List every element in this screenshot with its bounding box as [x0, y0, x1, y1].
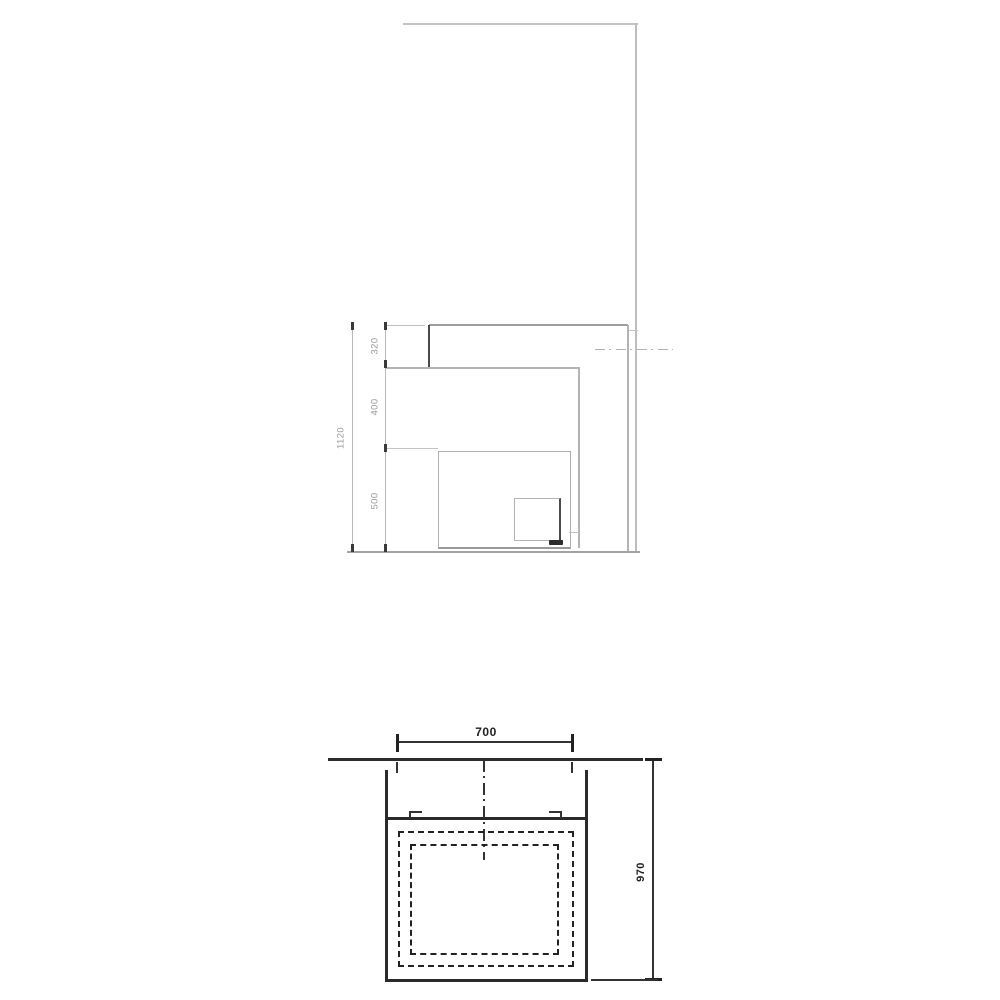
bottom-extension-line [591, 979, 658, 981]
dim-line-width [398, 741, 573, 743]
plan-body-right-edge [585, 770, 588, 982]
dim-tick [645, 758, 662, 761]
dim-tick [396, 734, 399, 752]
plan-view: 700 970 [0, 0, 1000, 1000]
plan-shelf-line [385, 817, 588, 820]
dim-label-width: 700 [475, 725, 497, 739]
opening-dashed-inner [410, 844, 559, 955]
dim-line-depth [652, 760, 654, 981]
hook-left-vertical [409, 811, 411, 818]
dim-label-depth: 970 [635, 862, 647, 882]
extension-stub-right [571, 762, 573, 773]
extension-stub-left [396, 762, 398, 773]
hook-right-vertical [560, 811, 562, 818]
dim-tick [571, 734, 574, 752]
wall-line [328, 758, 643, 761]
plan-body-left-edge [385, 770, 388, 982]
plan-body-bottom-edge [385, 979, 588, 982]
technical-drawing: 1120 320 400 500 700 [0, 0, 1000, 1000]
